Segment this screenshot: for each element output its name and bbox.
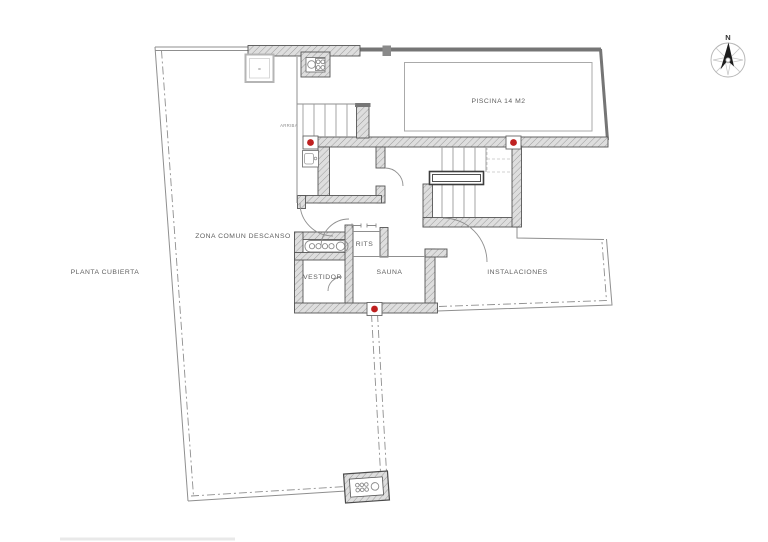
wall-sauna-right bbox=[425, 249, 435, 311]
zona-comun-label: ZONA COMUN DESCANSO bbox=[195, 233, 291, 240]
skylight-mark: = bbox=[258, 67, 261, 73]
sink-fixture bbox=[303, 151, 319, 168]
stair-handrail bbox=[430, 172, 484, 185]
plan-title: PLANTA CUBIERTA bbox=[71, 269, 140, 276]
equipment-box bbox=[344, 471, 390, 503]
wall-rits-right bbox=[380, 228, 388, 258]
instalaciones-label: INSTALACIONES bbox=[487, 269, 547, 276]
scale-bar-fragment bbox=[60, 538, 235, 541]
wall-stair-stub bbox=[357, 104, 370, 138]
sauna-label: SAUNA bbox=[377, 269, 403, 276]
skylight: = bbox=[246, 55, 274, 83]
arriba-label: ARRIBA bbox=[280, 123, 298, 128]
wall-core-right-upper bbox=[376, 147, 385, 168]
wall-stairwell-right bbox=[512, 146, 522, 227]
door-arc-core bbox=[385, 168, 403, 186]
wall-vestidor-right bbox=[345, 225, 353, 311]
pool-wall-corner bbox=[383, 46, 392, 57]
wall-stair-stub-cap bbox=[355, 103, 371, 107]
wall-pool-bottom bbox=[318, 137, 608, 147]
red-dot-marker bbox=[367, 303, 382, 316]
floor-plan-drawing: PISCINA 14 M2 bbox=[0, 0, 768, 542]
wall-sauna-right-stub bbox=[425, 249, 447, 257]
red-dot-marker bbox=[506, 136, 521, 149]
red-dot-marker bbox=[303, 136, 318, 149]
wall-core-left bbox=[318, 147, 330, 203]
pool-water bbox=[405, 63, 593, 132]
dimension-ticks bbox=[352, 224, 376, 228]
north-label: N bbox=[725, 33, 730, 42]
wall-lockers-bottom bbox=[295, 253, 352, 261]
floor-plan-page: PISCINA 14 M2 bbox=[0, 0, 768, 542]
pool-label: PISCINA 14 M2 bbox=[471, 98, 525, 105]
wall-core-bottom bbox=[298, 196, 382, 204]
pool-area: PISCINA 14 M2 bbox=[360, 46, 608, 141]
wall-block-bottom bbox=[295, 303, 438, 313]
wall-vestidor-left bbox=[295, 232, 304, 311]
wall-core-bottom-stub bbox=[298, 196, 306, 209]
exterior-stairs: ARRIBA bbox=[280, 104, 347, 138]
north-compass: N bbox=[711, 33, 745, 77]
wall-stairwell-bottom bbox=[423, 218, 521, 228]
locker-bench-fixture bbox=[305, 241, 348, 253]
stairwell bbox=[430, 147, 513, 217]
rits-label: RITS bbox=[356, 241, 373, 248]
pool-wall-right bbox=[601, 49, 608, 140]
vestidor-label: VESTIDOR bbox=[303, 274, 342, 281]
